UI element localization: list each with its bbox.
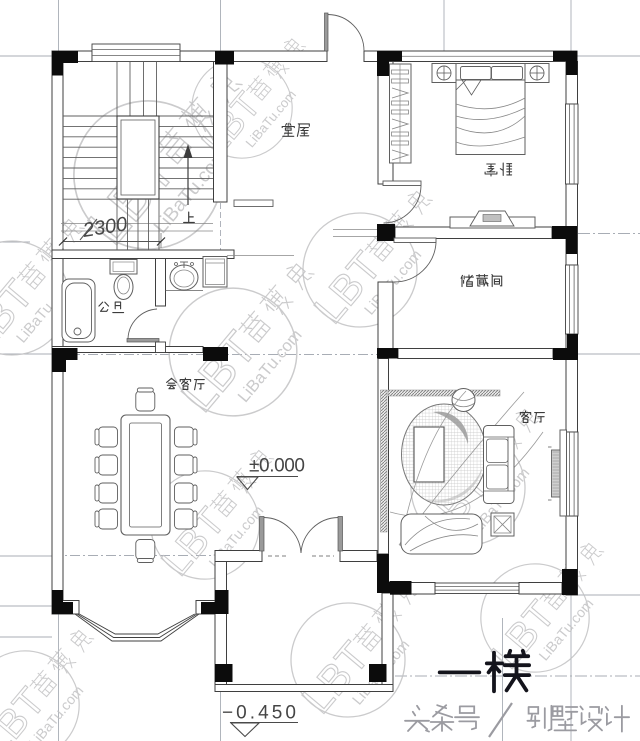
svg-text:−0.450: −0.450 — [222, 703, 296, 724]
svg-text:±0.000: ±0.000 — [249, 456, 305, 477]
